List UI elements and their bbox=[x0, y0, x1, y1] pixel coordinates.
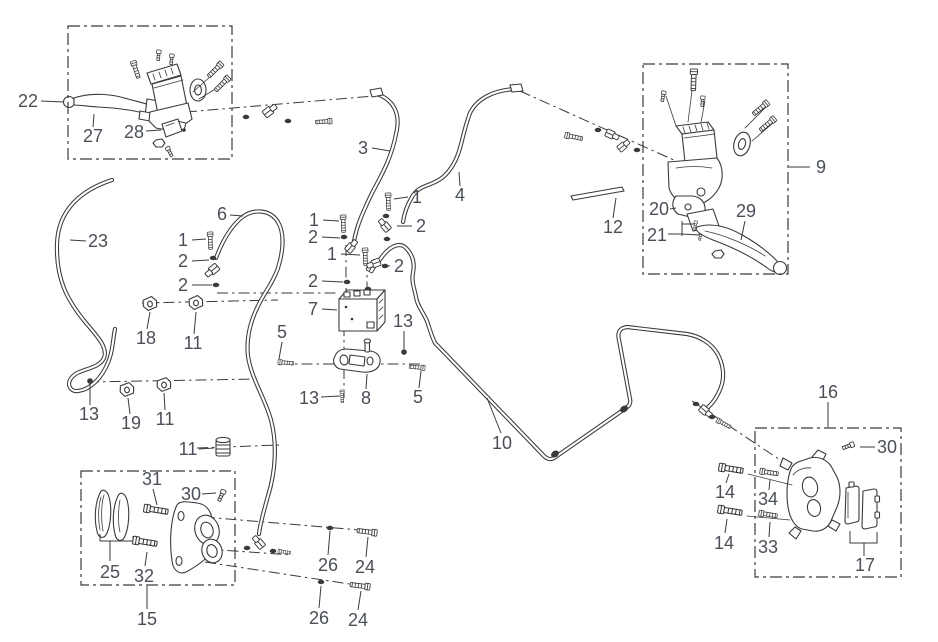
callout-label-11: 11 bbox=[184, 333, 203, 353]
callout-label-1: 1 bbox=[327, 244, 337, 264]
callout-label-26: 26 bbox=[309, 608, 329, 628]
callout-label-2: 2 bbox=[178, 251, 188, 271]
caliper-pin-bolt-32 bbox=[132, 536, 157, 548]
callout-label-29: 29 bbox=[736, 201, 756, 221]
callout-leader-1 bbox=[192, 239, 206, 240]
hose-grommet-11 bbox=[216, 437, 230, 456]
mount-bolt-14 bbox=[718, 463, 743, 475]
callout-leader-22 bbox=[41, 101, 64, 102]
callout-label-4: 4 bbox=[455, 185, 465, 205]
rear-hose-banjo-chain bbox=[510, 84, 640, 152]
callout-leader-24 bbox=[358, 591, 361, 610]
brake-system-parts-diagram-page: 2227282361223121272124135138512920212918… bbox=[0, 0, 938, 642]
callout-leader-5 bbox=[419, 371, 421, 388]
rear-caliper-hose-10 bbox=[379, 245, 723, 459]
callout-label-31: 31 bbox=[142, 469, 162, 489]
callout-leader-2 bbox=[322, 281, 343, 282]
front-lever-ball-end bbox=[64, 97, 75, 108]
callout-leader-11 bbox=[194, 312, 196, 334]
callout-label-12: 12 bbox=[603, 217, 623, 237]
callout-label-27: 27 bbox=[83, 126, 103, 146]
damper-13 bbox=[401, 349, 407, 355]
callout-leader-lines bbox=[41, 101, 875, 610]
callout-label-16: 16 bbox=[818, 382, 838, 402]
callout-label-9: 9 bbox=[816, 157, 826, 177]
callout-leader-2 bbox=[192, 260, 209, 261]
callout-label-10: 10 bbox=[492, 433, 512, 453]
callout-label-17: 17 bbox=[855, 555, 875, 575]
callout-label-15: 15 bbox=[137, 609, 157, 629]
callout-leader-23 bbox=[70, 240, 86, 241]
bleed-screw-30 bbox=[842, 442, 855, 451]
callout-label-11: 11 bbox=[156, 409, 175, 429]
callout-label-11: 11 bbox=[179, 439, 198, 459]
callout-label-2: 2 bbox=[308, 227, 318, 247]
callout-leader-8 bbox=[366, 374, 367, 389]
callout-leader-1 bbox=[323, 220, 339, 221]
callout-leader-26 bbox=[319, 586, 321, 608]
front-brake-pad bbox=[113, 493, 128, 540]
callout-leader-11 bbox=[164, 393, 165, 410]
callout-leader-7 bbox=[322, 309, 337, 310]
callout-leader-13 bbox=[321, 396, 340, 397]
abs-mounting-bracket-8 bbox=[334, 339, 381, 372]
hose-clamp-18 bbox=[142, 296, 158, 312]
callout-leader-2 bbox=[322, 237, 340, 238]
callout-label-18: 18 bbox=[136, 328, 156, 348]
callout-leader-6 bbox=[230, 215, 243, 216]
callout-label-13: 13 bbox=[299, 388, 319, 408]
callout-label-1: 1 bbox=[178, 230, 188, 250]
callout-label-2: 2 bbox=[394, 256, 404, 276]
callout-label-30: 30 bbox=[877, 437, 897, 457]
callout-leader-18 bbox=[147, 312, 150, 329]
callout-leader-14 bbox=[725, 519, 727, 533]
callout-leader-19 bbox=[128, 398, 130, 414]
callout-leader-12 bbox=[613, 198, 616, 218]
caliper-feed-hose-6 bbox=[216, 211, 283, 534]
callout-label-6: 6 bbox=[217, 204, 227, 224]
callout-leader-30 bbox=[202, 493, 216, 494]
abs-modulator-unit-7 bbox=[339, 290, 385, 331]
bleed-screw-30 bbox=[217, 489, 227, 502]
callout-label-8: 8 bbox=[361, 388, 371, 408]
callout-label-20: 20 bbox=[649, 199, 669, 219]
callout-labels: 2227282361223121272124135138512920212918… bbox=[18, 91, 897, 630]
callout-leader-4 bbox=[459, 172, 460, 186]
callout-label-34: 34 bbox=[758, 489, 778, 509]
rear-brake-pad bbox=[862, 489, 877, 529]
hose-clamp-19 bbox=[119, 382, 135, 397]
brake-system-parts-diagram: 2227282361223121272124135138512920212918… bbox=[0, 0, 938, 642]
callout-label-14: 14 bbox=[714, 533, 734, 553]
callout-label-32: 32 bbox=[134, 566, 154, 586]
callout-label-7: 7 bbox=[308, 299, 318, 319]
callout-label-25: 25 bbox=[100, 562, 120, 582]
rear-brake-pad bbox=[845, 486, 859, 524]
callout-label-22: 22 bbox=[18, 91, 38, 111]
mount-bolt-14 bbox=[717, 505, 742, 517]
front-brake-caliper-15 bbox=[171, 502, 226, 573]
callout-leader-3 bbox=[372, 148, 390, 151]
callout-label-3: 3 bbox=[358, 138, 368, 158]
callout-label-1: 1 bbox=[412, 187, 422, 207]
callout-label-13: 13 bbox=[79, 404, 99, 424]
hose-clamp-11 bbox=[188, 295, 204, 311]
caliper-pin-bolt-31 bbox=[143, 504, 168, 516]
callout-label-24: 24 bbox=[348, 610, 368, 630]
callout-label-14: 14 bbox=[715, 482, 735, 502]
callout-leader-28 bbox=[146, 130, 161, 131]
left-brake-hose-23 bbox=[57, 180, 115, 391]
callout-leader-1 bbox=[341, 254, 360, 255]
callout-label-5: 5 bbox=[413, 387, 423, 407]
caliper-bolt-34 bbox=[760, 468, 779, 477]
callout-label-30: 30 bbox=[181, 484, 201, 504]
callout-label-5: 5 bbox=[277, 322, 287, 342]
callout-label-13: 13 bbox=[393, 311, 413, 331]
callout-label-21: 21 bbox=[647, 225, 667, 245]
callout-label-2: 2 bbox=[308, 271, 318, 291]
callout-label-2: 2 bbox=[416, 216, 426, 236]
rear-master-cylinder-parts bbox=[660, 69, 787, 275]
callout-label-26: 26 bbox=[318, 555, 338, 575]
callout-label-23: 23 bbox=[88, 231, 108, 251]
callout-leader-32 bbox=[145, 552, 147, 566]
callout-leader-33 bbox=[769, 522, 770, 537]
callout-leader-24 bbox=[366, 537, 368, 557]
hose-clamp-11 bbox=[156, 377, 172, 392]
callout-label-24: 24 bbox=[355, 557, 375, 577]
damper-13 bbox=[87, 378, 93, 384]
front-brake-hose-3 bbox=[353, 94, 398, 247]
callout-label-33: 33 bbox=[758, 537, 778, 557]
mount-bolt-24 bbox=[357, 527, 378, 536]
callout-leader-1 bbox=[394, 197, 408, 199]
callout-label-2: 2 bbox=[178, 275, 188, 295]
callout-leader-5 bbox=[279, 342, 282, 359]
front-hose-banjo-chain bbox=[243, 88, 383, 125]
hose-clamps-group bbox=[87, 295, 230, 456]
rear-brake-caliper-16 bbox=[780, 450, 840, 539]
callout-leader-26 bbox=[328, 531, 330, 555]
callout-label-28: 28 bbox=[124, 122, 144, 142]
mount-bolt-24 bbox=[350, 581, 371, 590]
callout-leader-31 bbox=[153, 489, 157, 505]
rear-lever-ball-end bbox=[774, 262, 787, 275]
callout-label-19: 19 bbox=[121, 413, 141, 433]
